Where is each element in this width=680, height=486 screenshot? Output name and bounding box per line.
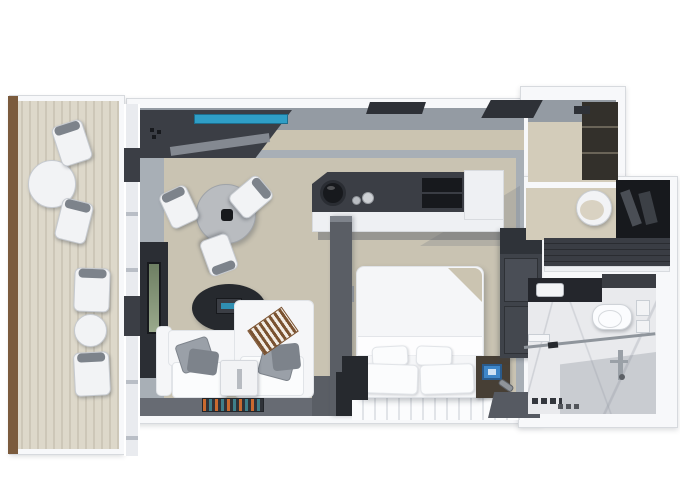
- towel-rack-2: [636, 320, 650, 333]
- bed-pillow-large-2: [419, 363, 474, 395]
- bathroom-sink: [536, 283, 564, 297]
- ceiling-vent-2: [481, 100, 543, 118]
- ceiling-vent-1: [366, 102, 426, 114]
- floor-drain-2: [558, 404, 580, 409]
- tv-screen: [147, 262, 161, 334]
- balcony-lounge-chair-1: [73, 267, 111, 312]
- dressing-counter: [544, 238, 670, 268]
- window-frame-segment-2: [124, 296, 140, 336]
- bar-cabinet-opening: [420, 176, 464, 210]
- window-frame-segment-1: [124, 148, 140, 182]
- balcony-wood-divider: [8, 96, 18, 454]
- shower-cross-handle: [610, 360, 628, 363]
- ice-bucket: [320, 180, 346, 206]
- towel-rack-1: [636, 300, 650, 316]
- wall-towel: [528, 334, 550, 342]
- balcony-side-table: [74, 314, 107, 347]
- ceiling-vent-3: [574, 106, 590, 114]
- floor-plan-stage: [0, 0, 680, 486]
- coffee-table: [220, 360, 258, 396]
- toilet: [592, 304, 632, 330]
- sofa-pillow-1b: [186, 348, 219, 376]
- bathroom-dark-wall-segment: [602, 274, 656, 288]
- console-vent-dots: [150, 128, 154, 132]
- shower-glass-handle: [548, 341, 559, 348]
- bottle-small: [352, 196, 361, 205]
- bar-white-end-counter: [464, 170, 504, 220]
- shower-knob: [619, 374, 625, 380]
- console-teal-screen: [194, 114, 288, 124]
- doormat-rug: [202, 398, 264, 412]
- bottle-large: [362, 192, 374, 204]
- bed-pillow-large-1: [363, 363, 418, 395]
- balcony-lounge-chair-2: [73, 351, 111, 397]
- nightstand-left: [342, 356, 368, 400]
- vanity-basin: [576, 190, 612, 226]
- dressing-counter-edge: [544, 266, 670, 272]
- bedside-tablet-screen: [482, 364, 502, 380]
